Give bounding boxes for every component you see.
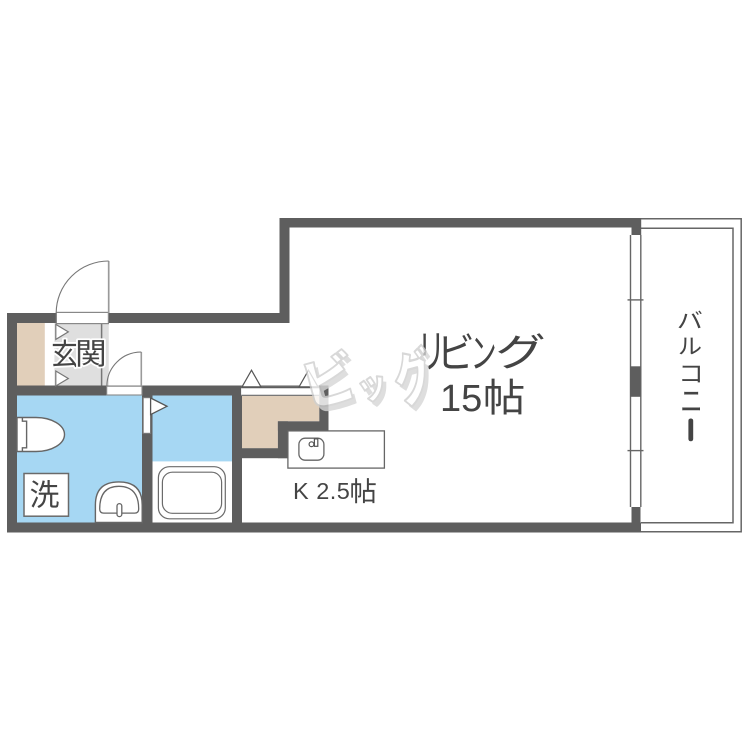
svg-text:K 2.5: K 2.5 xyxy=(293,478,350,504)
svg-text:15: 15 xyxy=(440,378,482,420)
